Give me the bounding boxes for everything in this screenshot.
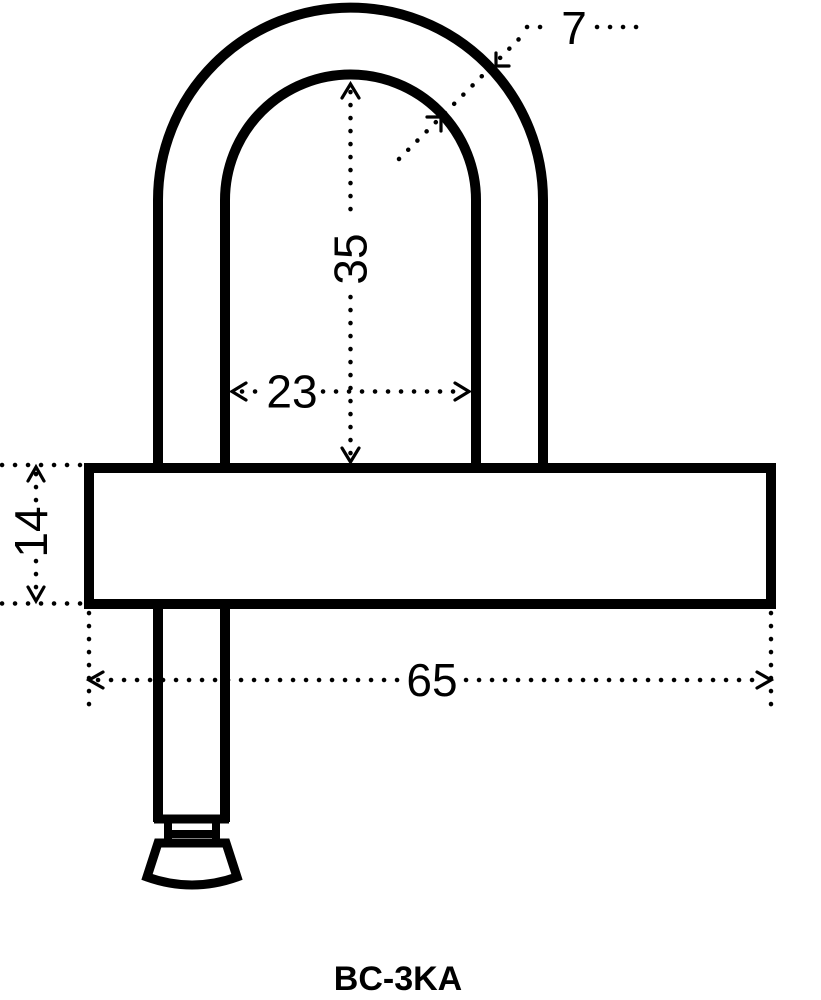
- lock-body: [89, 468, 771, 604]
- dim-arrow-right: [455, 383, 469, 400]
- post-cone-tip: [147, 843, 237, 885]
- dim-shackle-inner-width-label: 23: [266, 366, 317, 418]
- dim-body-height-label: 14: [5, 506, 57, 557]
- dim-body-height: 14: [2, 465, 84, 604]
- padlock-technical-drawing: 35 23 7 14: [0, 0, 821, 1000]
- dim-arrow-lower: [427, 117, 441, 131]
- shackle-post: [158, 598, 225, 822]
- dim-shackle-inner-height-label: 35: [325, 233, 377, 284]
- dim-leader-line: [399, 27, 641, 159]
- technical-drawing-page: 35 23 7 14: [0, 0, 821, 1000]
- dim-arrow-upper: [496, 53, 509, 66]
- dim-shackle-thickness-label: 7: [561, 2, 587, 54]
- model-title: BC-3KA: [334, 960, 462, 998]
- post-neck: [164, 822, 220, 841]
- dim-shackle-inner-height: 35: [325, 84, 377, 462]
- dim-arrow-right: [757, 672, 771, 688]
- dim-body-width-label: 65: [406, 654, 457, 706]
- padlock-outline: [89, 8, 771, 885]
- dim-body-width: 65: [89, 613, 771, 716]
